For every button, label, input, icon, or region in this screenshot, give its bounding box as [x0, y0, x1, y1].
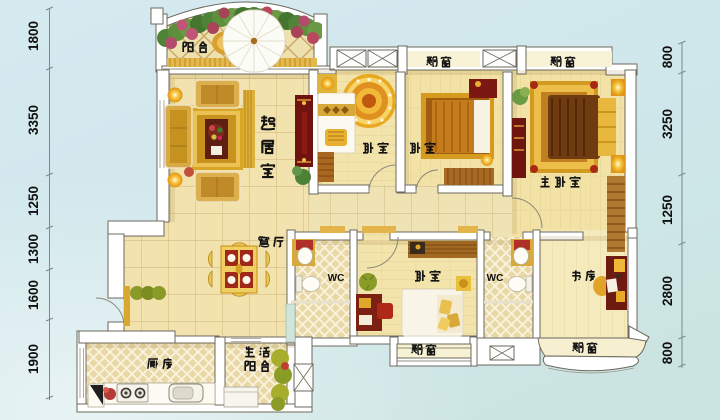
svg-text:3250: 3250 [660, 109, 675, 139]
svg-text:800: 800 [660, 342, 675, 365]
svg-text:3350: 3350 [26, 105, 41, 135]
svg-text:WC: WC [328, 273, 345, 284]
svg-text:1250: 1250 [26, 186, 41, 216]
svg-text:2800: 2800 [660, 276, 675, 306]
svg-text:WC: WC [487, 273, 504, 284]
svg-text:1900: 1900 [26, 344, 41, 374]
svg-text:1600: 1600 [26, 280, 41, 310]
svg-text:800: 800 [660, 46, 675, 69]
svg-text:1800: 1800 [26, 21, 41, 51]
svg-text:1250: 1250 [660, 195, 675, 225]
svg-text:1300: 1300 [26, 234, 41, 264]
